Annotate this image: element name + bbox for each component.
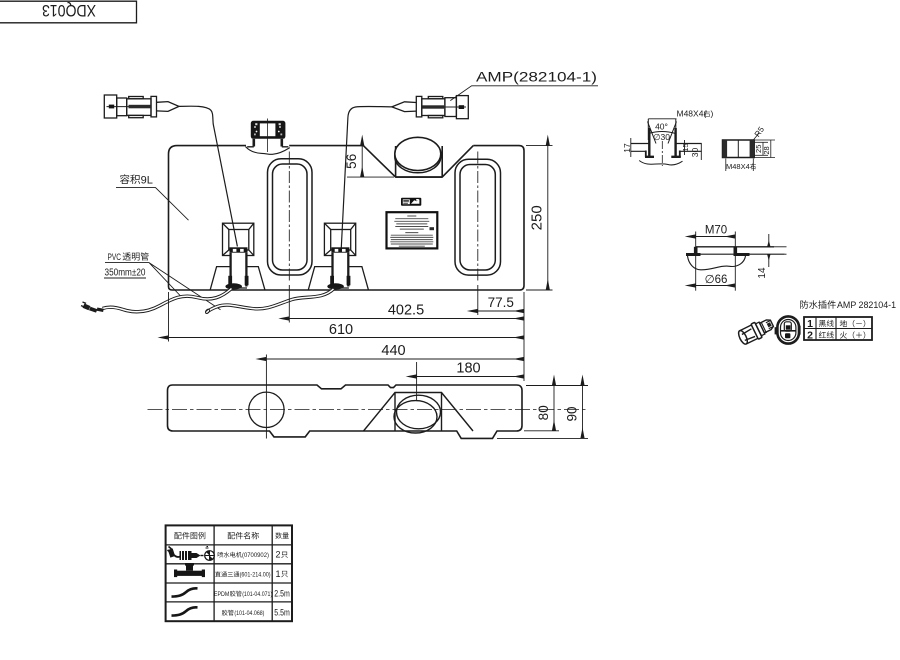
svg-text:80: 80 [536, 405, 551, 420]
svg-text:2: 2 [276, 550, 281, 560]
svg-text:9L: 9L [141, 174, 153, 186]
svg-text:15: 15 [681, 143, 690, 151]
svg-text:PVC: PVC [108, 252, 122, 263]
svg-text:14: 14 [757, 267, 768, 279]
svg-text:XDQ013: XDQ013 [42, 1, 96, 19]
svg-text:M48X4: M48X4 [726, 162, 750, 171]
svg-text:40°: 40° [655, 122, 668, 132]
svg-text:1: 1 [807, 318, 813, 330]
svg-text:EPDM: EPDM [214, 591, 230, 598]
svg-text:∅30: ∅30 [653, 132, 670, 142]
svg-text:): ) [711, 109, 714, 119]
svg-text:30: 30 [690, 148, 700, 158]
svg-text:610: 610 [329, 322, 353, 338]
svg-text:AMP(282104-1): AMP(282104-1) [476, 69, 597, 85]
svg-text:17: 17 [622, 143, 632, 153]
svg-text:402.5: 402.5 [388, 303, 424, 319]
svg-text:2.5m: 2.5m [274, 588, 290, 598]
svg-text:28: 28 [762, 146, 771, 154]
svg-text:(101-04.071): (101-04.071) [242, 591, 272, 598]
svg-text:(601-214.00): (601-214.00) [240, 572, 271, 579]
svg-text:1: 1 [276, 569, 281, 579]
svg-text:5.5m: 5.5m [274, 607, 290, 617]
svg-text:77.5: 77.5 [488, 295, 514, 310]
svg-text:M48X4(: M48X4( [677, 109, 707, 119]
svg-text:90: 90 [565, 406, 580, 421]
svg-text:440: 440 [381, 343, 405, 359]
svg-text:AMP 282104-1: AMP 282104-1 [837, 300, 896, 310]
svg-text:250: 250 [529, 205, 546, 230]
svg-text:2: 2 [807, 330, 813, 342]
svg-text:∅66: ∅66 [705, 274, 728, 286]
svg-text:(101-04.068): (101-04.068) [234, 610, 264, 617]
svg-text:350mm±20: 350mm±20 [105, 267, 146, 278]
svg-text:180: 180 [456, 361, 480, 377]
svg-text:(0700902): (0700902) [242, 552, 269, 559]
svg-text:R5: R5 [753, 125, 767, 139]
svg-text:M70: M70 [705, 225, 727, 237]
